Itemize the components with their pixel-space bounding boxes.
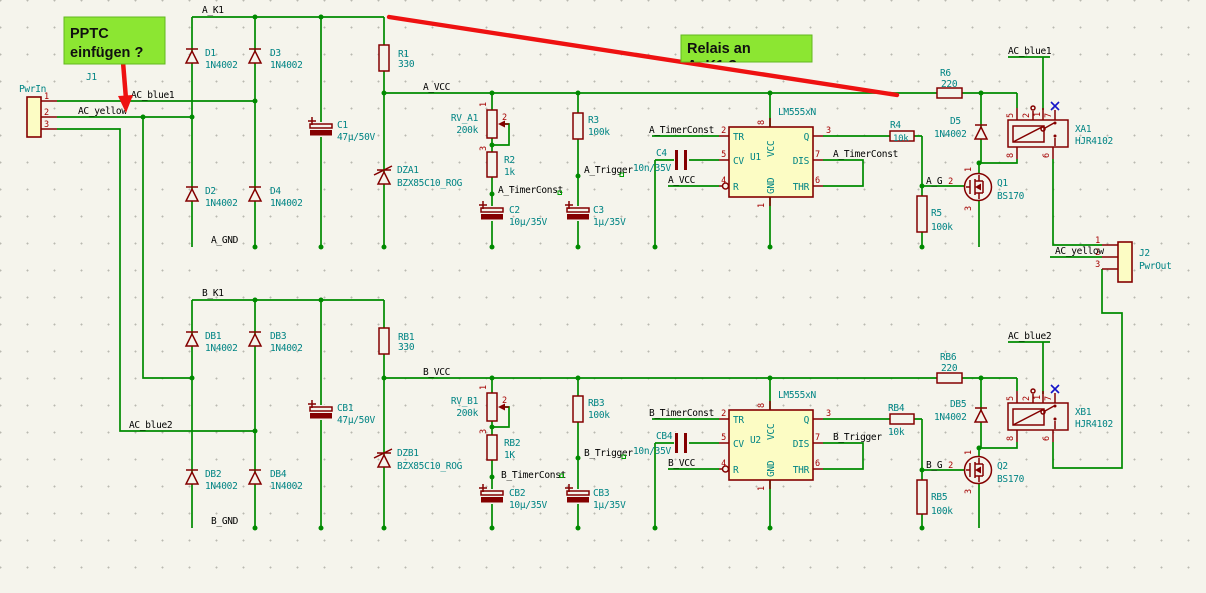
svg-text:RB4: RB4 — [888, 403, 905, 414]
svg-text:6: 6 — [1042, 436, 1052, 441]
svg-text:R3: R3 — [588, 115, 599, 126]
component-dzb1[interactable]: DZB1BZX85C10_ROG — [374, 448, 463, 472]
svg-text:7: 7 — [815, 150, 820, 160]
svg-text:8: 8 — [1006, 436, 1016, 441]
svg-text:Q: Q — [804, 415, 810, 426]
svg-text:1: 1 — [964, 167, 974, 172]
svg-text:Relais an: Relais an — [687, 41, 751, 57]
component-c4[interactable]: C4 10n/35V — [633, 148, 689, 174]
svg-text:330: 330 — [398, 342, 415, 353]
annotation-red-line[interactable] — [389, 17, 897, 95]
net-label-a-timerconst-1: A_TimerConst — [498, 185, 563, 196]
svg-text:DIS: DIS — [793, 156, 810, 167]
component-j2[interactable]: J2 PwrOut 1 2 3 — [1095, 236, 1171, 282]
net-label-b-vcc: B_VCC — [423, 367, 450, 378]
svg-text:BS170: BS170 — [997, 191, 1025, 202]
component-r1[interactable]: R1330 — [379, 45, 415, 71]
svg-text:1N4002: 1N4002 — [934, 412, 967, 423]
component-cb1[interactable]: CB147µ/50V — [308, 400, 376, 426]
svg-text:BS170: BS170 — [997, 474, 1025, 485]
svg-text:D4: D4 — [270, 186, 281, 197]
svg-text:1N4002: 1N4002 — [205, 60, 238, 71]
svg-text:3: 3 — [479, 146, 489, 151]
component-xb1-relay[interactable]: XB1HJR4102 5 2 1 7 8 6 — [1006, 385, 1113, 442]
svg-text:1µ/35V: 1µ/35V — [593, 500, 626, 511]
svg-text:CV: CV — [733, 439, 744, 450]
svg-text:8: 8 — [757, 403, 767, 408]
svg-text:1: 1 — [1033, 112, 1043, 117]
svg-text:4: 4 — [721, 459, 726, 469]
component-d2[interactable]: D21N4002 — [186, 186, 238, 209]
svg-text:R: R — [733, 182, 739, 193]
svg-text:10µ/35V: 10µ/35V — [509, 500, 548, 511]
svg-text:7: 7 — [815, 433, 820, 443]
svg-text:10n/35V: 10n/35V — [633, 163, 672, 174]
net-label-a-vcc-pin4: A_VCC — [668, 175, 695, 186]
svg-text:CB3: CB3 — [593, 488, 609, 499]
svg-text:1N4002: 1N4002 — [205, 343, 238, 354]
svg-text:1: 1 — [479, 102, 489, 107]
component-r5[interactable]: R5100k — [917, 196, 953, 233]
svg-text:CB1: CB1 — [337, 403, 354, 414]
component-rb4[interactable]: RB4 10k — [888, 403, 914, 438]
svg-text:HJR4102: HJR4102 — [1075, 419, 1113, 430]
svg-text:RV_A1: RV_A1 — [451, 113, 479, 124]
svg-text:D2: D2 — [205, 186, 216, 197]
svg-text:1k: 1k — [504, 167, 515, 178]
svg-text:1µ/35V: 1µ/35V — [593, 217, 626, 228]
svg-text:1: 1 — [1095, 236, 1100, 246]
svg-text:1N4002: 1N4002 — [205, 198, 238, 209]
component-r4[interactable]: R4 10k — [890, 120, 914, 144]
svg-text:C2: C2 — [509, 205, 520, 216]
svg-text:100k: 100k — [588, 410, 610, 421]
component-j1[interactable]: J1 PwrIn 1 2 3 — [19, 72, 97, 137]
svg-text:10k: 10k — [893, 134, 909, 144]
svg-text:1N4002: 1N4002 — [934, 129, 967, 140]
component-q1[interactable]: Q1BS170 1 2 3 — [948, 167, 1025, 211]
component-c3[interactable]: C31µ/35V — [565, 201, 626, 228]
net-label-ac-blue1-right: AC_blue1 — [1008, 46, 1052, 57]
component-c2[interactable]: C210µ/35V — [479, 201, 548, 228]
svg-text:2: 2 — [721, 409, 726, 419]
svg-text:THR: THR — [793, 182, 810, 193]
svg-text:8: 8 — [757, 120, 767, 125]
net-label-b-g: B_G — [926, 460, 943, 471]
net-label-ac-blue2-left: AC_blue2 — [129, 420, 172, 431]
svg-text:2: 2 — [721, 126, 726, 136]
svg-text:1N4002: 1N4002 — [270, 198, 303, 209]
svg-text:PPTC: PPTC — [70, 26, 109, 42]
svg-text:100k: 100k — [931, 222, 953, 233]
svg-text:einfügen ?: einfügen ? — [70, 45, 143, 61]
svg-text:LM555xN: LM555xN — [778, 390, 817, 401]
net-label-a-vcc: A_VCC — [423, 82, 450, 93]
svg-text:RB3: RB3 — [588, 398, 604, 409]
component-q2[interactable]: Q2BS170 1 2 3 — [948, 450, 1025, 494]
svg-text:XB1: XB1 — [1075, 407, 1092, 418]
svg-text:J2: J2 — [1139, 248, 1150, 259]
svg-text:DB5: DB5 — [950, 399, 966, 410]
svg-text:1N4002: 1N4002 — [205, 481, 238, 492]
svg-text:10n/35V: 10n/35V — [633, 446, 672, 457]
net-label-b-timerconst-2: B_TimerConst — [649, 408, 714, 419]
net-label-a-timerconst-3: A_TimerConst — [833, 149, 898, 160]
svg-text:RV_B1: RV_B1 — [451, 396, 479, 407]
svg-text:BZX85C10_ROG: BZX85C10_ROG — [397, 178, 463, 189]
svg-text:5: 5 — [1006, 396, 1016, 401]
svg-text:CB4: CB4 — [656, 431, 673, 442]
net-label-b-k1: B_K1 — [202, 288, 224, 299]
svg-text:1: 1 — [757, 203, 767, 208]
svg-text:D3: D3 — [270, 48, 281, 59]
net-label-b-timerconst-1: B_TimerConst — [501, 470, 566, 481]
svg-text:8: 8 — [1006, 153, 1016, 158]
svg-text:DB1: DB1 — [205, 331, 222, 342]
svg-text:DZA1: DZA1 — [397, 165, 419, 176]
svg-text:BZX85C10_ROG: BZX85C10_ROG — [397, 461, 463, 472]
component-u2[interactable]: U2 LM555xN TR CV R Q DIS THR VCC GND 2 5… — [719, 390, 831, 491]
svg-text:2: 2 — [948, 461, 953, 471]
svg-text:RB2: RB2 — [504, 438, 520, 449]
svg-text:7: 7 — [1044, 396, 1054, 401]
svg-text:U1: U1 — [750, 152, 761, 163]
schematic-canvas[interactable]: J1 PwrIn 1 2 3 D11N4002 D31N4002 D21N400… — [0, 0, 1206, 593]
component-u1[interactable]: U1 LM555xN TR CV R Q DIS THR VCC GND 2 5… — [719, 107, 831, 208]
component-cb4[interactable]: CB4 10n/35V — [633, 431, 689, 457]
net-label-a-k1: A_K1 — [202, 5, 224, 16]
svg-text:1N4002: 1N4002 — [270, 60, 303, 71]
svg-text:TR: TR — [733, 415, 744, 426]
svg-text:1: 1 — [479, 385, 489, 390]
svg-text:TR: TR — [733, 132, 744, 143]
svg-text:RB5: RB5 — [931, 492, 947, 503]
component-c1[interactable]: C147µ/50V — [308, 117, 376, 143]
svg-text:6: 6 — [815, 176, 820, 186]
j1-ref[interactable]: J1 — [86, 72, 97, 83]
svg-text:GND: GND — [766, 177, 777, 194]
svg-text:220: 220 — [941, 79, 958, 90]
component-db2[interactable]: DB21N4002 — [186, 469, 238, 492]
svg-text:DB3: DB3 — [270, 331, 286, 342]
component-rb6[interactable]: RB6220 — [937, 352, 962, 383]
svg-text:DIS: DIS — [793, 439, 810, 450]
svg-text:CB2: CB2 — [509, 488, 525, 499]
net-label-a-g: A_G — [926, 176, 943, 187]
svg-text:R: R — [733, 465, 739, 476]
net-label-b-trigger-2: B_Trigger — [833, 432, 882, 443]
net-label-ac-blue1-left: AC_blue1 — [131, 90, 175, 101]
component-r3[interactable]: R3100k — [573, 113, 610, 139]
component-rv-a1[interactable]: RV_A1 200k 1 2 3 — [451, 102, 509, 151]
svg-text:RB6: RB6 — [940, 352, 957, 363]
component-rb2[interactable]: RB21K — [487, 435, 520, 461]
svg-text:DB4: DB4 — [270, 469, 287, 480]
svg-text:GND: GND — [766, 460, 777, 477]
svg-text:7: 7 — [1044, 113, 1054, 118]
svg-text:3: 3 — [826, 409, 831, 419]
svg-text:3: 3 — [44, 120, 49, 130]
svg-text:R2: R2 — [504, 155, 515, 166]
svg-text:2: 2 — [502, 396, 507, 406]
net-label-a-timerconst-2: A_TimerConst — [649, 125, 714, 136]
svg-text:2: 2 — [1022, 396, 1032, 401]
svg-text:VCC: VCC — [766, 424, 777, 440]
note-pptc[interactable]: PPTC einfügen ? — [64, 17, 165, 64]
component-db3[interactable]: DB31N4002 — [249, 331, 303, 354]
svg-text:C4: C4 — [656, 148, 667, 159]
component-rb5[interactable]: RB5100k — [917, 480, 953, 517]
svg-text:2: 2 — [948, 177, 953, 187]
svg-text:Q2: Q2 — [997, 461, 1008, 472]
svg-text:C1: C1 — [337, 120, 348, 131]
svg-text:3: 3 — [964, 489, 974, 494]
svg-text:2: 2 — [44, 108, 49, 118]
svg-text:VCC: VCC — [766, 141, 777, 157]
component-r2[interactable]: R21k — [487, 152, 515, 178]
svg-text:HJR4102: HJR4102 — [1075, 136, 1113, 147]
svg-text:2: 2 — [502, 113, 507, 123]
svg-text:47µ/50V: 47µ/50V — [337, 132, 376, 143]
net-label-ac-blue2-right: AC_blue2 — [1008, 331, 1051, 342]
net-label-a-gnd: A_GND — [211, 235, 239, 246]
svg-text:100k: 100k — [931, 506, 953, 517]
net-label-ac-yellow-right: AC_yellow — [1055, 246, 1104, 257]
net-label-a-trigger: A_Trigger — [584, 165, 633, 176]
svg-text:10µ/35V: 10µ/35V — [509, 217, 548, 228]
svg-text:10k: 10k — [888, 427, 905, 438]
component-d3[interactable]: D31N4002 — [249, 48, 303, 71]
svg-text:DB2: DB2 — [205, 469, 221, 480]
svg-text:220: 220 — [941, 363, 958, 374]
svg-text:5: 5 — [721, 433, 726, 443]
svg-text:200k: 200k — [456, 408, 478, 419]
svg-text:4: 4 — [721, 176, 726, 186]
svg-text:3: 3 — [1095, 260, 1100, 270]
component-db5[interactable]: DB51N4002 — [934, 399, 987, 423]
svg-text:Q: Q — [804, 132, 810, 143]
svg-text:200k: 200k — [456, 125, 478, 136]
svg-text:R6: R6 — [940, 68, 951, 79]
svg-text:1N4002: 1N4002 — [270, 481, 303, 492]
component-r6[interactable]: R6220 — [937, 68, 962, 98]
junction-dots — [141, 15, 984, 531]
j1-value[interactable]: PwrIn — [19, 84, 46, 95]
svg-text:100k: 100k — [588, 127, 610, 138]
component-cb3[interactable]: CB31µ/35V — [565, 484, 626, 511]
svg-text:LM555xN: LM555xN — [778, 107, 817, 118]
svg-text:CV: CV — [733, 156, 744, 167]
component-rb3[interactable]: RB3100k — [573, 396, 610, 422]
component-d4[interactable]: D41N4002 — [249, 186, 303, 209]
svg-text:XA1: XA1 — [1075, 124, 1092, 135]
net-label-ac-yellow-left: AC_yellow — [78, 106, 127, 117]
svg-text:6: 6 — [815, 459, 820, 469]
no-connect-icon — [1051, 102, 1059, 110]
svg-text:330: 330 — [398, 59, 415, 70]
svg-text:C3: C3 — [593, 205, 604, 216]
component-d5[interactable]: D51N4002 — [934, 116, 987, 140]
svg-text:D5: D5 — [950, 116, 961, 127]
svg-text:U2: U2 — [750, 435, 761, 446]
svg-text:1: 1 — [1033, 395, 1043, 400]
note-relais[interactable]: Relais an A_K1 ? — [681, 35, 812, 74]
svg-text:3: 3 — [479, 429, 489, 434]
svg-text:2: 2 — [1022, 113, 1032, 118]
svg-text:5: 5 — [721, 150, 726, 160]
svg-text:1: 1 — [964, 450, 974, 455]
svg-text:3: 3 — [826, 126, 831, 136]
component-db1[interactable]: DB11N4002 — [186, 331, 238, 354]
svg-text:5: 5 — [1006, 113, 1016, 118]
component-d1[interactable]: D11N4002 — [186, 48, 238, 71]
net-label-b-gnd: B_GND — [211, 516, 239, 527]
no-connect-icon — [1051, 385, 1059, 393]
net-label-b-vcc-pin4: B_VCC — [668, 458, 695, 469]
svg-text:THR: THR — [793, 465, 810, 476]
svg-text:R4: R4 — [890, 120, 901, 131]
component-xa1-relay[interactable]: XA1HJR4102 5 2 1 7 8 6 — [1006, 102, 1113, 159]
component-dza1[interactable]: DZA1BZX85C10_ROG — [374, 165, 463, 189]
svg-text:1N4002: 1N4002 — [270, 343, 303, 354]
svg-text:3: 3 — [964, 206, 974, 211]
component-rb1[interactable]: RB1330 — [379, 328, 415, 354]
svg-text:1: 1 — [757, 486, 767, 491]
component-cb2[interactable]: CB210µ/35V — [479, 484, 548, 511]
svg-text:R5: R5 — [931, 208, 942, 219]
svg-text:Q1: Q1 — [997, 178, 1008, 189]
svg-text:D1: D1 — [205, 48, 216, 59]
svg-text:47µ/50V: 47µ/50V — [337, 415, 376, 426]
component-db4[interactable]: DB41N4002 — [249, 469, 303, 492]
svg-text:DZB1: DZB1 — [397, 448, 419, 459]
svg-text:6: 6 — [1042, 153, 1052, 158]
svg-text:PwrOut: PwrOut — [1139, 261, 1172, 272]
svg-text:1K: 1K — [504, 450, 515, 461]
svg-text:1: 1 — [44, 92, 49, 102]
